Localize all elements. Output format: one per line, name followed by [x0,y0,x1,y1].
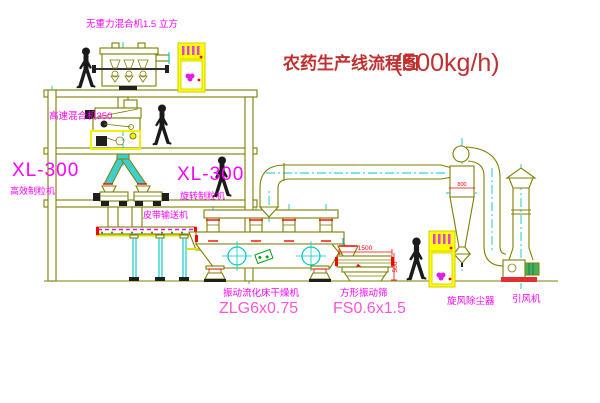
gravity-free-mixer [92,43,169,108]
discharge-chutes [108,207,142,227]
dim-screen-height: 500 [392,261,399,272]
label-gravity-mixer: 无重力混合机1.5 立方 [86,18,178,30]
label-screen-name: 方形振动筛 [340,287,388,299]
label-granulator-right-model: XL-300 [177,164,244,185]
label-granulator-left-name: 高效制粒机 [10,185,55,196]
control-cabinet-ground [429,231,455,287]
cad-drawing-canvas: 无重力混合机1.5 立方 农药生产线流程图 (500kg/h) 高速混合机350… [0,0,600,403]
high-speed-mixer [85,100,141,149]
label-screen-model: FS0.6x1.5 [333,300,406,317]
y-splitter-chute [103,154,147,184]
drawing-title-capacity: (500kg/h) [394,49,500,77]
label-granulator-left-model: XL-300 [12,160,79,181]
exhaust-stack [507,168,535,260]
induced-draft-fan [501,260,539,282]
label-granulator-right-name: 旋转制粒机 [180,190,225,201]
cyclone-dust-collector [449,146,506,267]
dryer-ports [206,218,333,232]
worker-figure-ground [408,238,426,280]
dim-screen-length: 1500 [358,245,373,252]
label-dryer-model: ZLG6x0.75 [219,300,298,317]
control-cabinet-top [178,43,205,92]
conveyor-legs [129,235,189,281]
process-flow-diagram: 无重力混合机1.5 立方 农药生产线流程图 (500kg/h) 高速混合机350… [0,0,600,403]
belt-conveyor [96,227,197,281]
fluid-bed-dryer [195,210,350,282]
label-dryer-name: 振动流化床干燥机 [223,287,300,299]
worker-figure-floor2 [154,105,171,145]
label-belt-conveyor: 皮带输送机 [143,209,188,220]
label-high-speed-mixer: 高速混合机350 [49,110,112,122]
worker-figure-roof [78,48,95,88]
label-cyclone: 旋风除尘器 [447,295,495,307]
dim-cyclone-body: 800 [457,182,466,188]
label-fan: 引风机 [512,293,541,305]
